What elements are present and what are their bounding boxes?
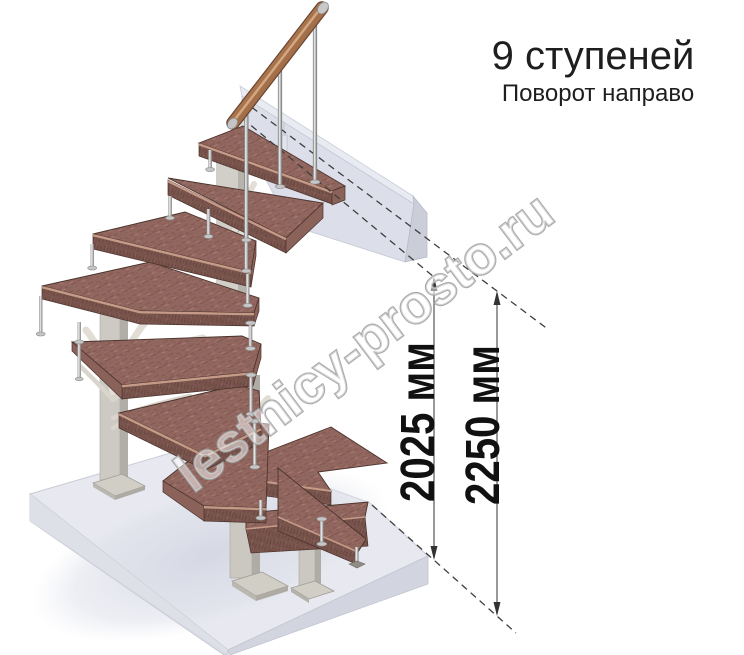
- svg-text:2025 мм: 2025 мм: [392, 342, 445, 502]
- svg-text:Поворот направо: Поворот направо: [502, 80, 694, 107]
- svg-text:9 ступеней: 9 ступеней: [492, 34, 695, 78]
- svg-text:2250 мм: 2250 мм: [457, 345, 510, 505]
